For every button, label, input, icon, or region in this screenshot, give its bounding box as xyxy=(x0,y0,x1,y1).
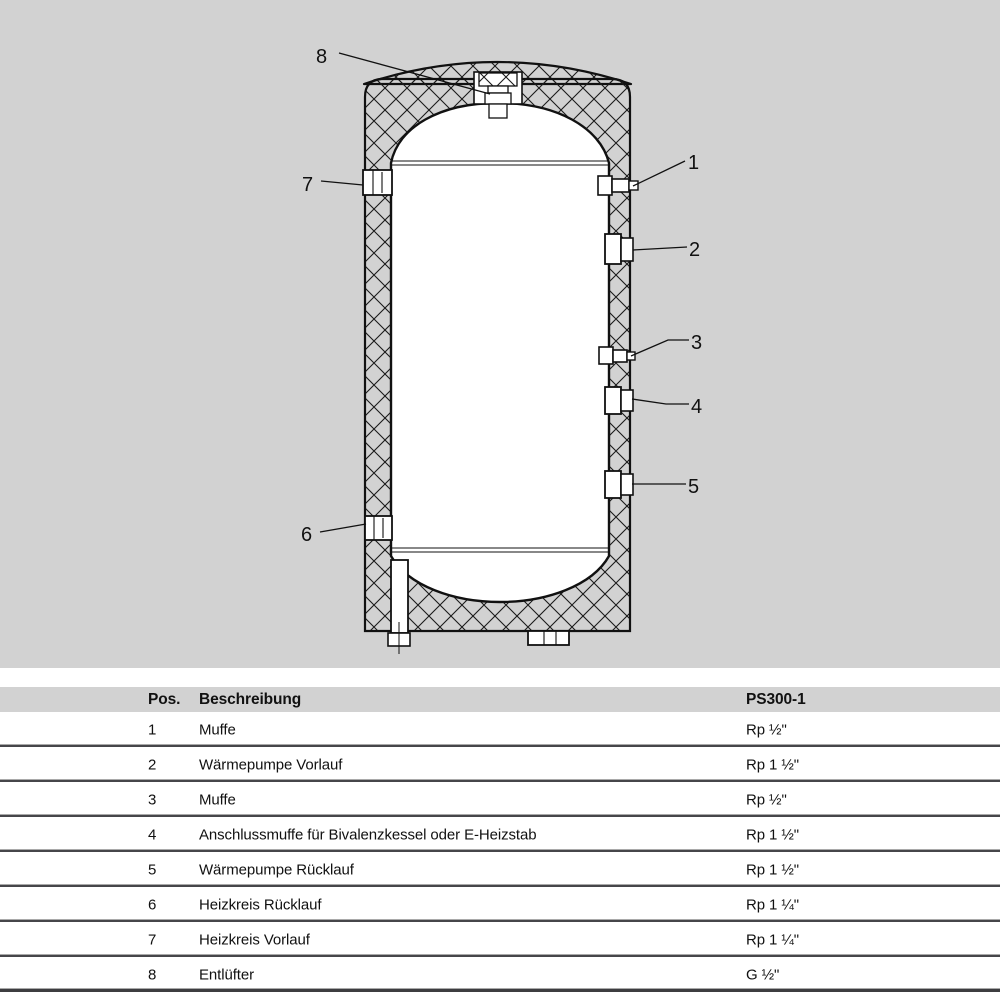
description-cell: Wärmepumpe Vorlauf xyxy=(199,756,342,773)
value-cell: Rp 1 ¼" xyxy=(746,896,799,913)
value-cell: Rp ½" xyxy=(746,721,787,738)
description-cell: Muffe xyxy=(199,721,236,738)
value-cell: Rp 1 ½" xyxy=(746,861,799,878)
description-cell: Muffe xyxy=(199,791,236,808)
fitting-5 xyxy=(605,471,633,498)
callout-label-8: 8 xyxy=(316,46,327,68)
leader-line-4 xyxy=(632,399,689,404)
leader-line-7 xyxy=(321,181,363,185)
value-cell: G ½" xyxy=(746,966,779,983)
table-row: 2 Wärmepumpe Vorlauf Rp 1 ½" xyxy=(0,747,1000,782)
header-pos: Pos. xyxy=(148,691,180,709)
callout-label-7: 7 xyxy=(302,174,313,196)
callout-label-4: 4 xyxy=(691,396,702,418)
table-row: 3 Muffe Rp ½" xyxy=(0,782,1000,817)
callout-label-2: 2 xyxy=(689,239,700,261)
table-row: 5 Wärmepumpe Rücklauf Rp 1 ½" xyxy=(0,852,1000,887)
description-cell: Entlüfter xyxy=(199,966,254,983)
leader-line-2 xyxy=(633,247,687,250)
description-cell: Anschlussmuffe für Bivalenzkessel oder E… xyxy=(199,826,536,843)
callout-label-6: 6 xyxy=(301,524,312,546)
callout-label-3: 3 xyxy=(691,332,702,354)
description-cell: Wärmepumpe Rücklauf xyxy=(199,861,354,878)
drain-pipe xyxy=(388,560,410,654)
bottom-foot xyxy=(528,631,569,645)
value-cell: Rp 1 ½" xyxy=(746,756,799,773)
leader-line-1 xyxy=(633,161,685,186)
pos-cell: 7 xyxy=(148,931,156,948)
pos-cell: 3 xyxy=(148,791,156,808)
tank-cutaway-drawing: 8 7 1 2 3 4 5 6 xyxy=(0,0,1000,668)
value-cell: Rp 1 ¼" xyxy=(746,931,799,948)
pos-cell: 4 xyxy=(148,826,156,843)
value-cell: Rp ½" xyxy=(746,791,787,808)
table-row: 7 Heizkreis Vorlauf Rp 1 ¼" xyxy=(0,922,1000,957)
table-row: 1 Muffe Rp ½" xyxy=(0,712,1000,747)
fitting-7 xyxy=(363,170,392,195)
callout-label-5: 5 xyxy=(688,476,699,498)
table-row: 6 Heizkreis Rücklauf Rp 1 ¼" xyxy=(0,887,1000,922)
pos-cell: 8 xyxy=(148,966,156,983)
fitting-2 xyxy=(605,234,633,264)
inner-vessel xyxy=(391,103,609,602)
fitting-6 xyxy=(365,516,392,540)
pos-cell: 2 xyxy=(148,756,156,773)
callout-label-1: 1 xyxy=(688,152,699,174)
connection-spec-table: Pos. Beschreibung PS300-1 1 Muffe Rp ½" … xyxy=(0,687,1000,992)
table-header-row: Pos. Beschreibung PS300-1 xyxy=(0,687,1000,712)
leader-line-6 xyxy=(320,524,366,532)
leader-line-3 xyxy=(631,340,689,356)
tank-diagram-section: 8 7 1 2 3 4 5 6 xyxy=(0,0,1000,668)
header-model: PS300-1 xyxy=(746,691,806,709)
fitting-1 xyxy=(598,176,638,195)
description-cell: Heizkreis Rücklauf xyxy=(199,896,321,913)
fitting-4 xyxy=(605,387,633,414)
pos-cell: 6 xyxy=(148,896,156,913)
table-row: 4 Anschlussmuffe für Bivalenzkessel oder… xyxy=(0,817,1000,852)
value-cell: Rp 1 ½" xyxy=(746,826,799,843)
pos-cell: 1 xyxy=(148,721,156,738)
pos-cell: 5 xyxy=(148,861,156,878)
header-description: Beschreibung xyxy=(199,691,301,709)
table-row: 8 Entlüfter G ½" xyxy=(0,957,1000,992)
description-cell: Heizkreis Vorlauf xyxy=(199,931,310,948)
